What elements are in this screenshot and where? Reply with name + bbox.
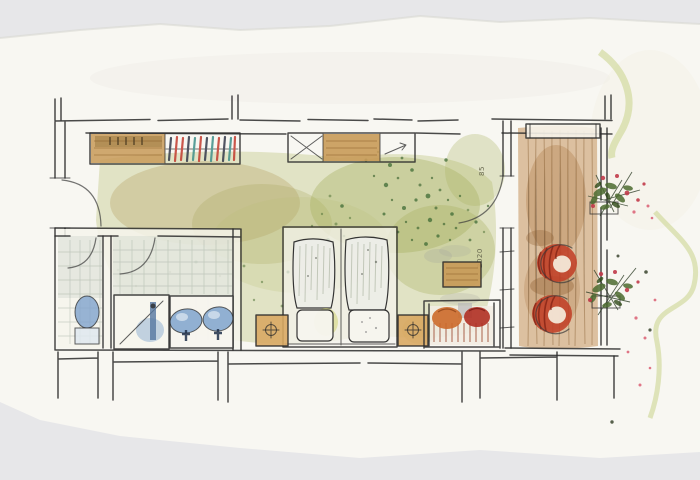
pillow-left [297,310,333,341]
bathroom [55,228,241,350]
balcony-bench-top [526,124,600,138]
pillow-right [349,310,389,342]
cushion-red [464,307,490,327]
floorplan-photo: 85 2020 [0,0,700,480]
bottom-inner-wall [56,350,505,351]
floorplan-sketch: 85 2020 [0,0,700,480]
chair-shadow [526,230,554,246]
shower [114,295,169,349]
nightstand-left [256,315,288,346]
dimension-annotation: 85 [478,166,486,176]
double-washbasin [168,296,234,348]
wc-toilet [75,296,99,344]
cushion-orange [432,307,462,329]
twin-beds [283,227,397,347]
